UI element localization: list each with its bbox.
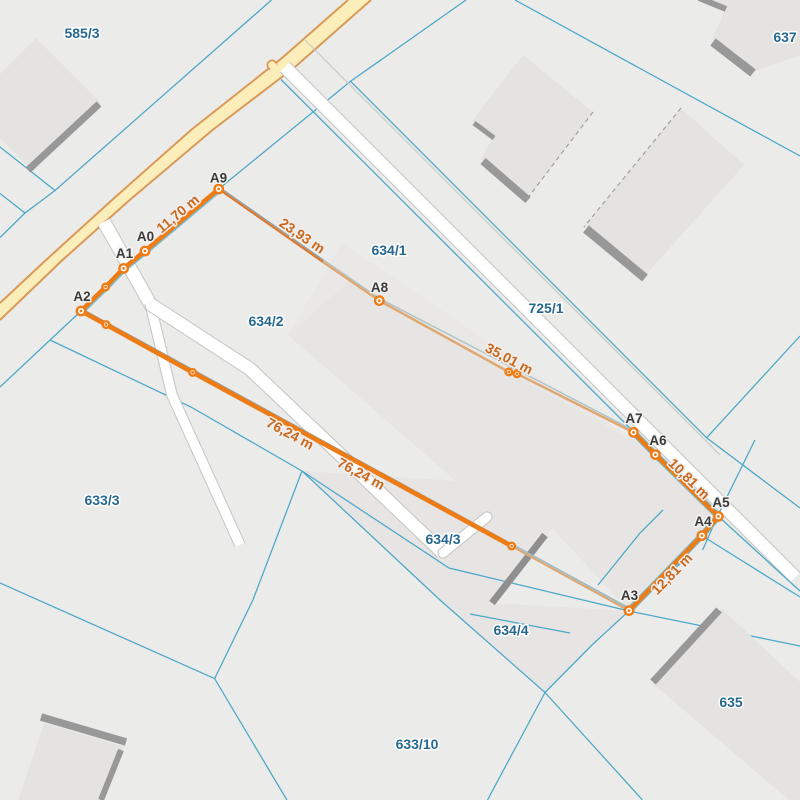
svg-text:725/1: 725/1 [528,300,563,316]
svg-text:633/10: 633/10 [396,736,439,752]
svg-text:585/3: 585/3 [64,25,99,41]
svg-text:A6: A6 [649,433,667,448]
svg-text:A3: A3 [621,588,639,603]
svg-text:A1: A1 [116,246,134,261]
svg-text:A0: A0 [137,229,154,244]
svg-text:634/2: 634/2 [248,313,283,329]
svg-text:637: 637 [773,29,797,45]
svg-text:634/3: 634/3 [425,531,460,547]
svg-text:635: 635 [719,694,743,710]
svg-text:A9: A9 [210,171,227,186]
svg-text:633/3: 633/3 [84,492,119,508]
svg-text:634/1: 634/1 [371,242,406,258]
svg-text:A2: A2 [73,289,90,304]
svg-text:A7: A7 [625,411,642,426]
svg-text:A5: A5 [712,495,730,510]
svg-text:A8: A8 [371,280,389,295]
svg-text:634/4: 634/4 [493,622,528,638]
svg-text:A4: A4 [694,514,712,529]
